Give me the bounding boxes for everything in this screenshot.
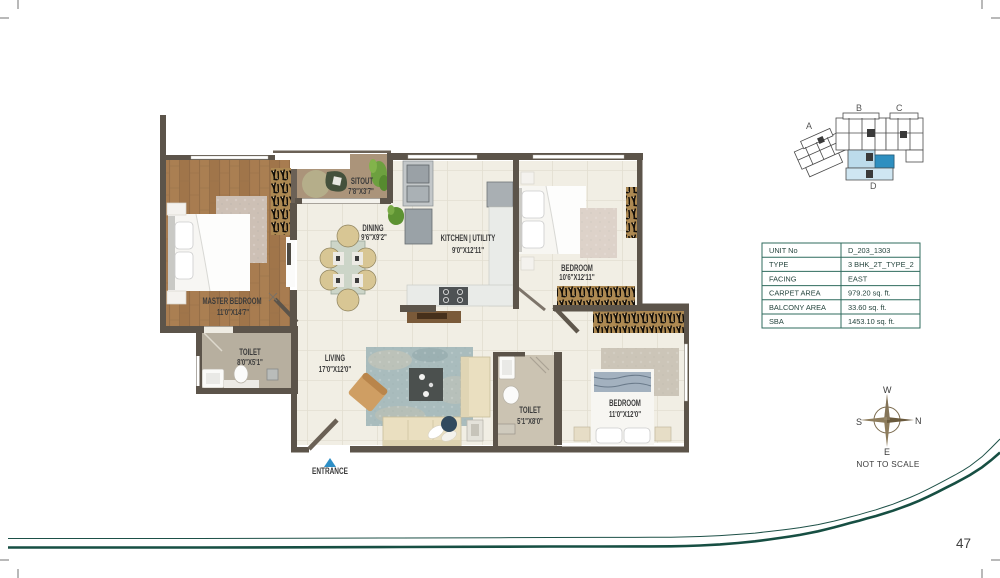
svg-text:11'0"X14'7": 11'0"X14'7" <box>217 307 249 317</box>
svg-text:S: S <box>856 417 862 427</box>
svg-text:5'1"X8'0": 5'1"X8'0" <box>517 416 543 426</box>
svg-text:8'0"X5'1": 8'0"X5'1" <box>237 357 263 367</box>
svg-text:9'0"X12'11": 9'0"X12'11" <box>452 245 484 255</box>
svg-text:7'8"X3'7": 7'8"X3'7" <box>348 186 374 196</box>
svg-text:A: A <box>806 121 812 131</box>
svg-text:1453.10 sq. ft.: 1453.10 sq. ft. <box>848 317 895 326</box>
svg-text:D_203_1303: D_203_1303 <box>848 246 890 255</box>
svg-text:C: C <box>896 103 903 113</box>
svg-text:NOT TO SCALE: NOT TO SCALE <box>856 460 919 469</box>
svg-text:W: W <box>883 385 892 395</box>
svg-text:TOILET: TOILET <box>519 405 541 416</box>
svg-text:N: N <box>915 416 922 426</box>
svg-text:979.20 sq. ft.: 979.20 sq. ft. <box>848 289 891 298</box>
svg-text:17'0"X12'0": 17'0"X12'0" <box>319 364 351 374</box>
svg-text:33.60 sq. ft.: 33.60 sq. ft. <box>848 303 887 312</box>
svg-text:BALCONY AREA: BALCONY AREA <box>769 303 826 312</box>
svg-text:KITCHEN | UTILITY: KITCHEN | UTILITY <box>441 233 496 244</box>
svg-text:FACING: FACING <box>769 274 797 283</box>
svg-text:UNIT No: UNIT No <box>769 246 798 255</box>
svg-text:BEDROOM: BEDROOM <box>609 398 641 409</box>
svg-text:CARPET AREA: CARPET AREA <box>769 289 821 298</box>
svg-text:11'0"X12'0": 11'0"X12'0" <box>609 409 641 419</box>
svg-text:MASTER BEDROOM: MASTER BEDROOM <box>202 296 261 307</box>
svg-text:SBA: SBA <box>769 317 784 326</box>
svg-text:TYPE: TYPE <box>769 260 788 269</box>
svg-text:SITOUT: SITOUT <box>351 176 373 187</box>
svg-text:D: D <box>870 181 877 191</box>
svg-text:9'6"X9'2": 9'6"X9'2" <box>361 232 387 242</box>
svg-text:E: E <box>884 447 890 457</box>
svg-text:LIVING: LIVING <box>325 353 345 364</box>
svg-text:B: B <box>856 103 862 113</box>
svg-text:EAST: EAST <box>848 274 868 283</box>
svg-text:TOILET: TOILET <box>239 347 261 358</box>
svg-text:ENTRANCE: ENTRANCE <box>312 466 348 476</box>
svg-text:10'6"X12'11": 10'6"X12'11" <box>559 272 594 282</box>
svg-text:47: 47 <box>956 536 971 551</box>
svg-text:3 BHK_2T_TYPE_2: 3 BHK_2T_TYPE_2 <box>848 260 914 269</box>
